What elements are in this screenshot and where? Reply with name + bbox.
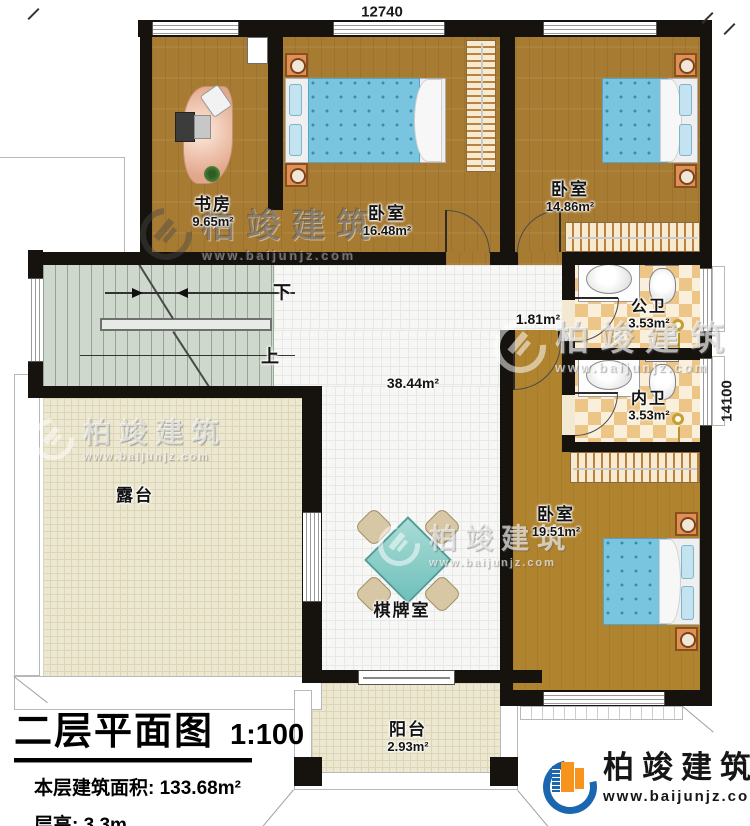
room-label-study: 书房 9.65m² <box>192 195 233 229</box>
door-gap-private-bath <box>562 395 575 435</box>
dimension-top: 12740 <box>361 4 403 21</box>
wall-bath-bottom <box>562 442 712 452</box>
bath2-shower-icon <box>672 413 684 425</box>
nightstand <box>675 512 698 536</box>
wardrobe-bedroom3 <box>570 452 700 483</box>
bed3-pillow <box>681 586 694 620</box>
window-public-bath <box>700 268 712 332</box>
area-label-hall: 38.44m² <box>387 375 439 391</box>
potted-plant <box>204 166 220 182</box>
window-sill-bottom <box>520 706 683 720</box>
nightstand <box>674 164 697 188</box>
porch-outline-h <box>0 157 124 158</box>
bed3-blanket <box>603 538 667 625</box>
bath1-sink <box>586 264 632 294</box>
room-label-private-bath: 内卫 3.53m² <box>628 390 669 423</box>
bed1-pillow <box>289 84 302 116</box>
terrace-railing-left <box>14 374 40 676</box>
brand-url: www.baijunjz.com <box>603 788 750 805</box>
balcony-sliding-door <box>358 670 455 685</box>
floor-height-line: 层高: 3.3m <box>34 810 304 826</box>
wall-study-bedroom1 <box>268 37 283 210</box>
door-gap-public-bath <box>562 300 575 341</box>
nightstand <box>675 627 698 651</box>
wardrobe-bedroom1 <box>466 40 496 172</box>
stair-up-label: 上 <box>261 347 279 368</box>
bed1-blanket <box>308 78 420 163</box>
nightstand <box>674 53 697 77</box>
wall-terrace-top <box>28 386 322 398</box>
window-bedroom3 <box>543 692 665 705</box>
room-label-terrace: 露台 <box>116 486 154 506</box>
bath1-shower-icon <box>672 319 684 331</box>
nightstand <box>285 53 308 77</box>
plan-scale: 1:100 <box>230 719 304 752</box>
title-underline <box>14 758 252 763</box>
stair-down-label: 下 <box>273 283 291 304</box>
sill-right-1 <box>712 266 725 332</box>
wall-mid-horizontal <box>28 252 712 265</box>
floor-area-line: 本层建筑面积: 133.68m² <box>34 773 304 800</box>
bed2-pillow <box>679 124 692 156</box>
room-label-balcony: 阳台 2.93m² <box>387 720 428 754</box>
room-label-chess: 棋牌室 <box>374 601 431 621</box>
arrow-left-icon <box>177 288 188 298</box>
bed1-pillow <box>289 124 302 156</box>
arrow-right-icon <box>132 288 143 298</box>
office-chair <box>175 112 195 142</box>
bed2-pillow <box>679 84 692 116</box>
dimension-right: 14100 <box>719 380 736 422</box>
area-label-hall-nook: 1.81m² <box>516 311 560 327</box>
plan-title: 二层平面图 <box>14 700 214 755</box>
title-block: 二层平面图 1:100 本层建筑面积: 133.68m² 层高: 3.3m <box>14 700 304 826</box>
window-study <box>152 22 239 35</box>
bed3-pillow <box>681 545 694 579</box>
balcony-railing-bottom <box>294 772 518 790</box>
door-gap-bedroom3 <box>515 330 558 343</box>
balcony-pillar-right <box>490 757 518 786</box>
bath2-shower-stem <box>678 427 680 443</box>
room-label-bedroom2: 卧室 14.86m² <box>546 180 594 214</box>
window-private-bath <box>700 358 712 426</box>
bath1-shower-stem <box>678 333 680 348</box>
bed3-sheet-fold <box>659 539 681 624</box>
brand-logo-icon <box>541 752 593 810</box>
sill-miter <box>682 706 713 732</box>
floor-terrace <box>43 398 302 676</box>
window-terrace-chess <box>303 512 321 602</box>
dimension-tick <box>27 8 39 20</box>
window-bedroom2 <box>543 22 657 35</box>
room-label-bedroom3: 卧室 19.51m² <box>532 505 580 539</box>
wall-bedroom3-left <box>500 330 513 706</box>
floor-plan-canvas: 12740 14100 书房 9.65m² 卧室 16.48m² 卧室 14.8… <box>0 0 750 826</box>
bath2-sink <box>586 360 632 390</box>
room-label-public-bath: 公卫 3.53m² <box>628 298 669 331</box>
bed2-blanket <box>602 78 668 163</box>
door-gap-bedroom1 <box>446 252 490 265</box>
study-niche <box>247 37 268 64</box>
dimension-tick <box>723 23 735 35</box>
door-gap-study <box>268 210 283 252</box>
computer-monitor <box>194 115 211 139</box>
window-bedroom1 <box>333 22 445 35</box>
nightstand <box>285 163 308 187</box>
bed1-sheet-fold <box>414 79 442 162</box>
wall-bath-divider <box>562 348 712 360</box>
door-gap-bedroom2 <box>518 252 562 265</box>
wall-left-upper <box>140 20 152 252</box>
wardrobe-bedroom2 <box>565 222 700 252</box>
porch-outline-v <box>124 157 125 252</box>
wall-bedroom1-bedroom2 <box>500 20 515 265</box>
stair-handrail <box>100 318 272 331</box>
room-label-bedroom1: 卧室 16.48m² <box>363 204 411 238</box>
brand-logo: 柏竣建筑 www.baijunjz.com <box>541 752 750 810</box>
window-stair <box>28 278 43 362</box>
brand-name: 柏竣建筑 <box>603 752 750 783</box>
